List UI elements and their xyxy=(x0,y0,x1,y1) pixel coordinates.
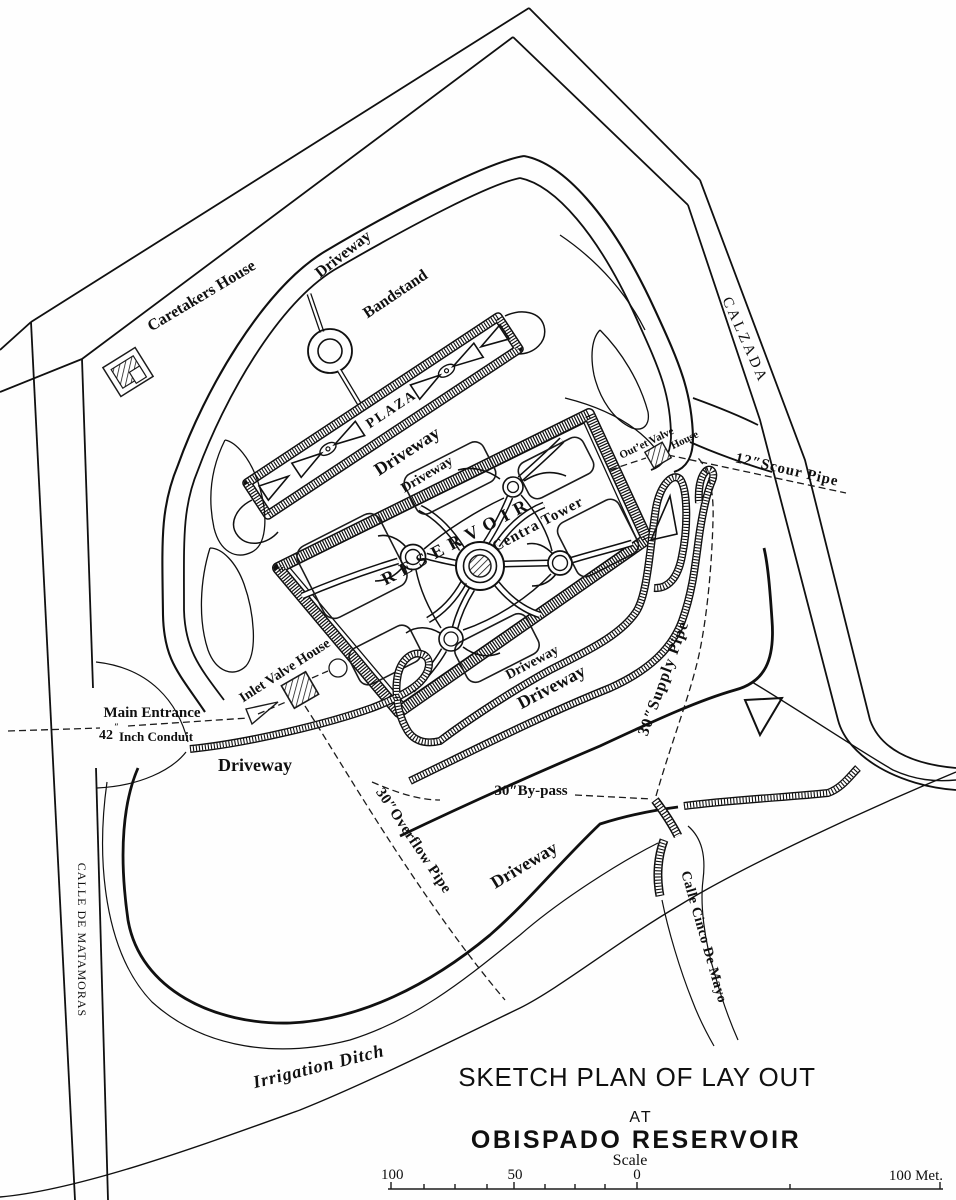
svg-text:0: 0 xyxy=(633,1167,641,1183)
svg-text:100 Met.: 100 Met. xyxy=(889,1168,943,1184)
svg-text:50: 50 xyxy=(508,1167,523,1183)
svg-text:Scale: Scale xyxy=(613,1152,648,1169)
svg-text:100: 100 xyxy=(381,1167,404,1183)
svg-text:OBISPADO RESERVOIR: OBISPADO RESERVOIR xyxy=(471,1126,801,1154)
svg-text:Main Entrance: Main Entrance xyxy=(103,705,200,721)
svg-text:30″By-pass: 30″By-pass xyxy=(494,783,567,799)
svg-text:Inch Conduit: Inch Conduit xyxy=(119,729,194,744)
svg-text:AT: AT xyxy=(629,1109,652,1126)
svg-text:CALLE DE MATAMORAS: CALLE DE MATAMORAS xyxy=(75,863,89,1017)
svg-text:SKETCH PLAN OF LAY OUT: SKETCH PLAN OF LAY OUT xyxy=(458,1062,816,1092)
svg-text:42: 42 xyxy=(99,728,113,743)
svg-text:Driveway: Driveway xyxy=(218,755,292,775)
